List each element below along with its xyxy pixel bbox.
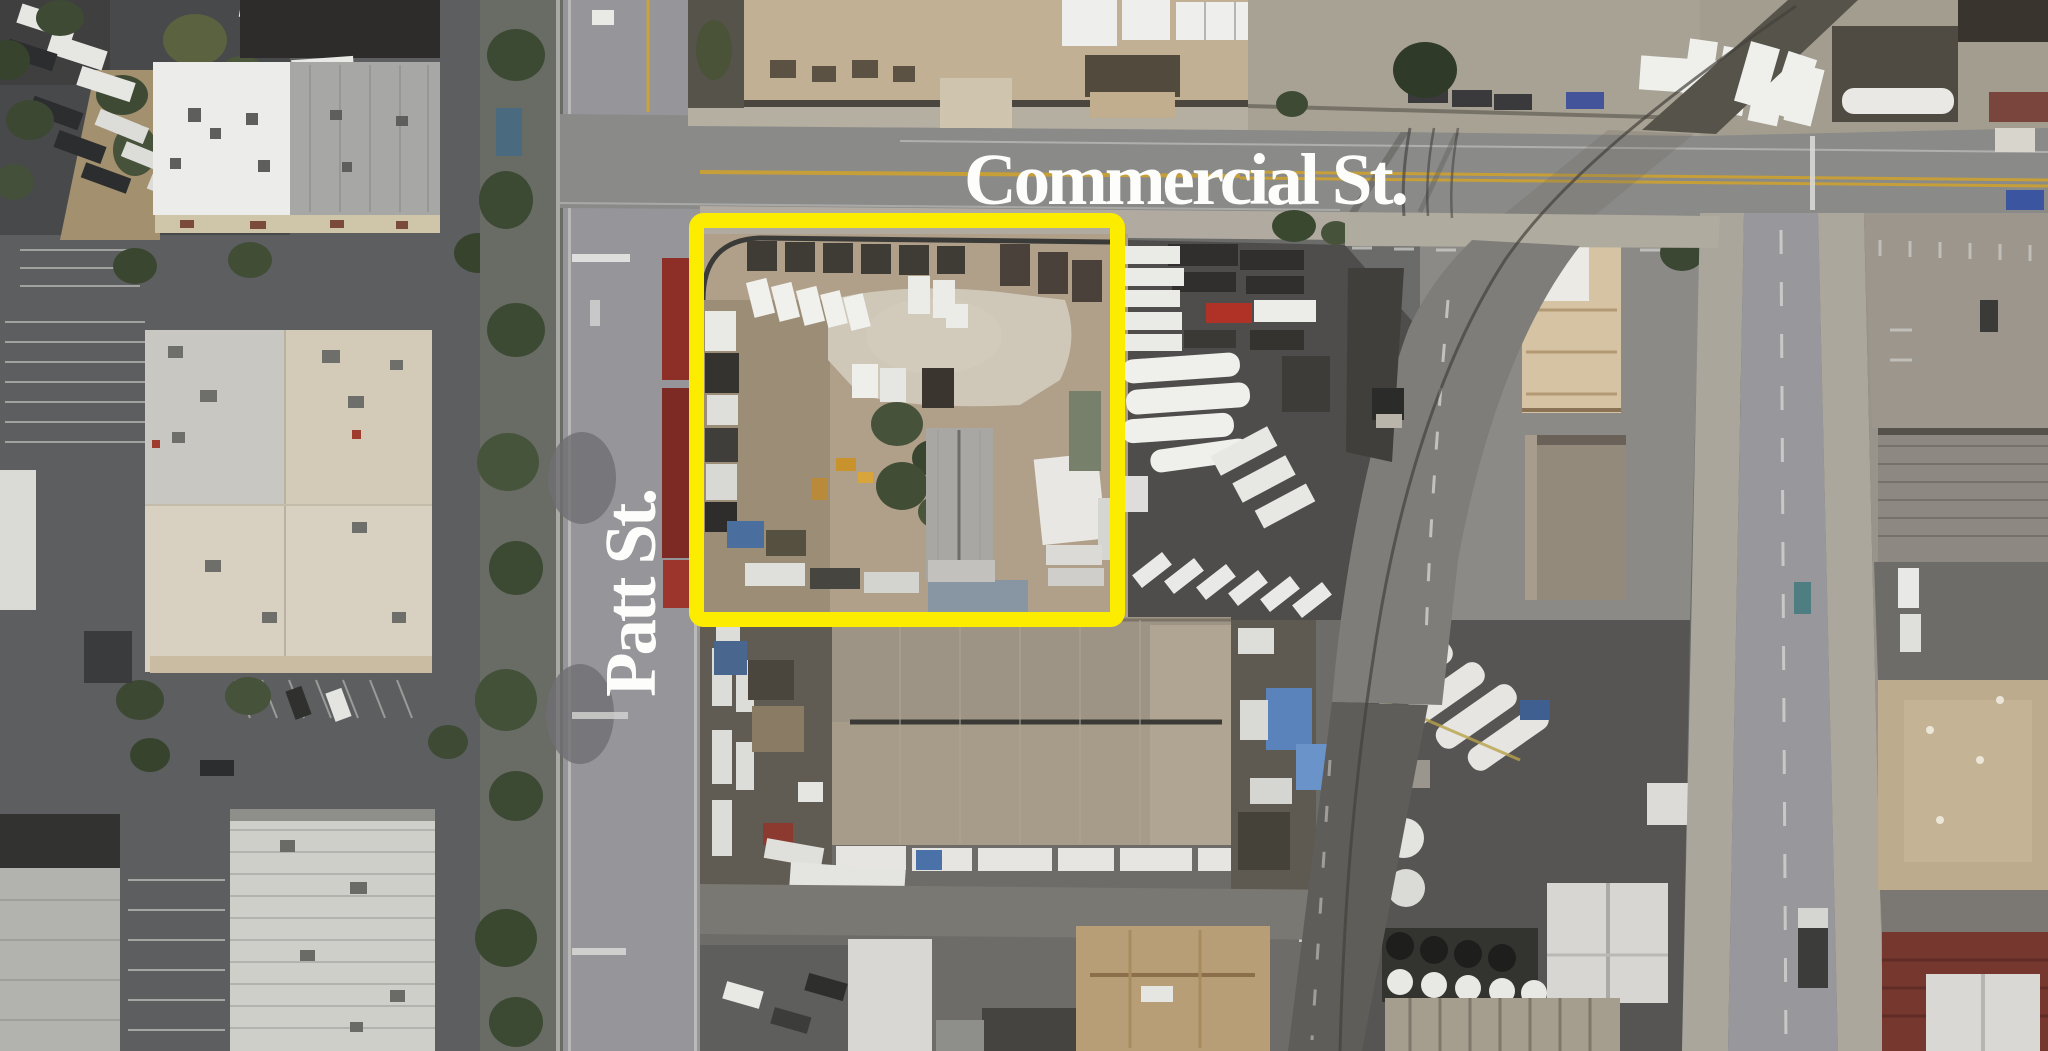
svg-text:Commercial St.: Commercial St. [964,139,1407,220]
svg-text:Patt St.: Patt St. [590,490,671,697]
